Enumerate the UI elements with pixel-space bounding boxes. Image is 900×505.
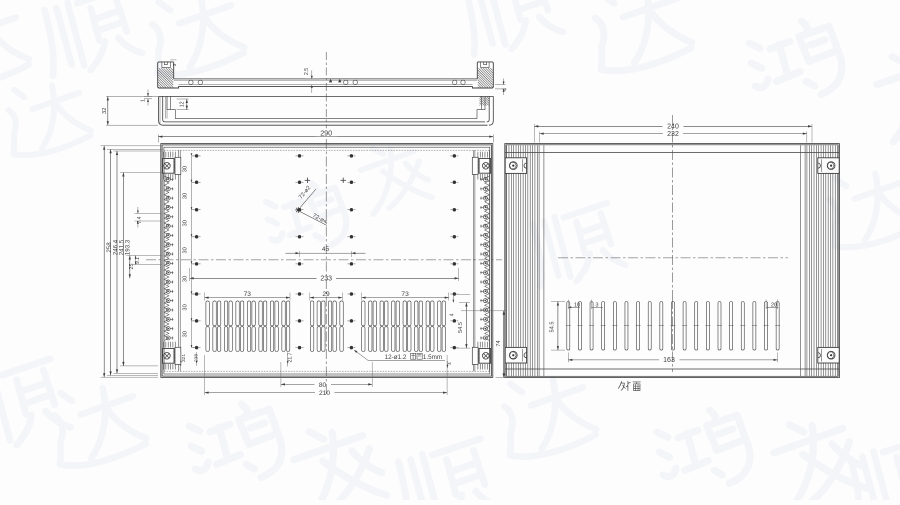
svg-text:21.7: 21.7: [288, 352, 294, 362]
svg-text:232: 232: [667, 131, 679, 138]
svg-text:290: 290: [320, 128, 332, 137]
svg-text:10: 10: [574, 302, 580, 308]
svg-text:54.5: 54.5: [550, 321, 556, 332]
svg-text:238: 238: [194, 354, 200, 362]
svg-text:73: 73: [401, 291, 409, 298]
svg-text:4: 4: [447, 362, 453, 365]
svg-text:73: 73: [244, 291, 252, 298]
svg-text:7.4: 7.4: [137, 216, 143, 223]
svg-text:1: 1: [140, 99, 146, 102]
svg-text:233: 233: [320, 276, 332, 283]
svg-text:20: 20: [771, 302, 777, 308]
svg-text:30: 30: [183, 193, 189, 199]
svg-text:32: 32: [102, 108, 108, 114]
svg-text:9.1: 9.1: [135, 257, 141, 264]
svg-text:12-ø1.2: 12-ø1.2: [385, 354, 407, 361]
svg-text:240: 240: [667, 124, 679, 131]
svg-text:321: 321: [181, 354, 187, 362]
svg-text:30: 30: [183, 331, 189, 337]
svg-text:3: 3: [172, 63, 177, 66]
svg-text:74: 74: [496, 340, 502, 346]
svg-text:210: 210: [319, 390, 330, 397]
svg-text:3: 3: [595, 302, 598, 308]
svg-text:1.5mm: 1.5mm: [423, 354, 442, 361]
svg-text:4: 4: [503, 88, 509, 91]
svg-text:4: 4: [450, 313, 456, 316]
svg-text:29: 29: [322, 291, 330, 298]
svg-text:45: 45: [322, 246, 330, 253]
svg-text:30: 30: [183, 304, 189, 310]
svg-text:30: 30: [183, 247, 189, 253]
svg-text:54.5: 54.5: [458, 322, 464, 333]
svg-text:163: 163: [663, 357, 675, 364]
svg-text:30: 30: [183, 276, 189, 282]
svg-text:2.5: 2.5: [304, 68, 310, 75]
svg-text:30: 30: [183, 166, 189, 172]
svg-text:80: 80: [319, 382, 327, 389]
svg-text:193.3: 193.3: [125, 239, 132, 255]
svg-text:12: 12: [179, 101, 185, 107]
svg-text:30: 30: [183, 220, 189, 226]
